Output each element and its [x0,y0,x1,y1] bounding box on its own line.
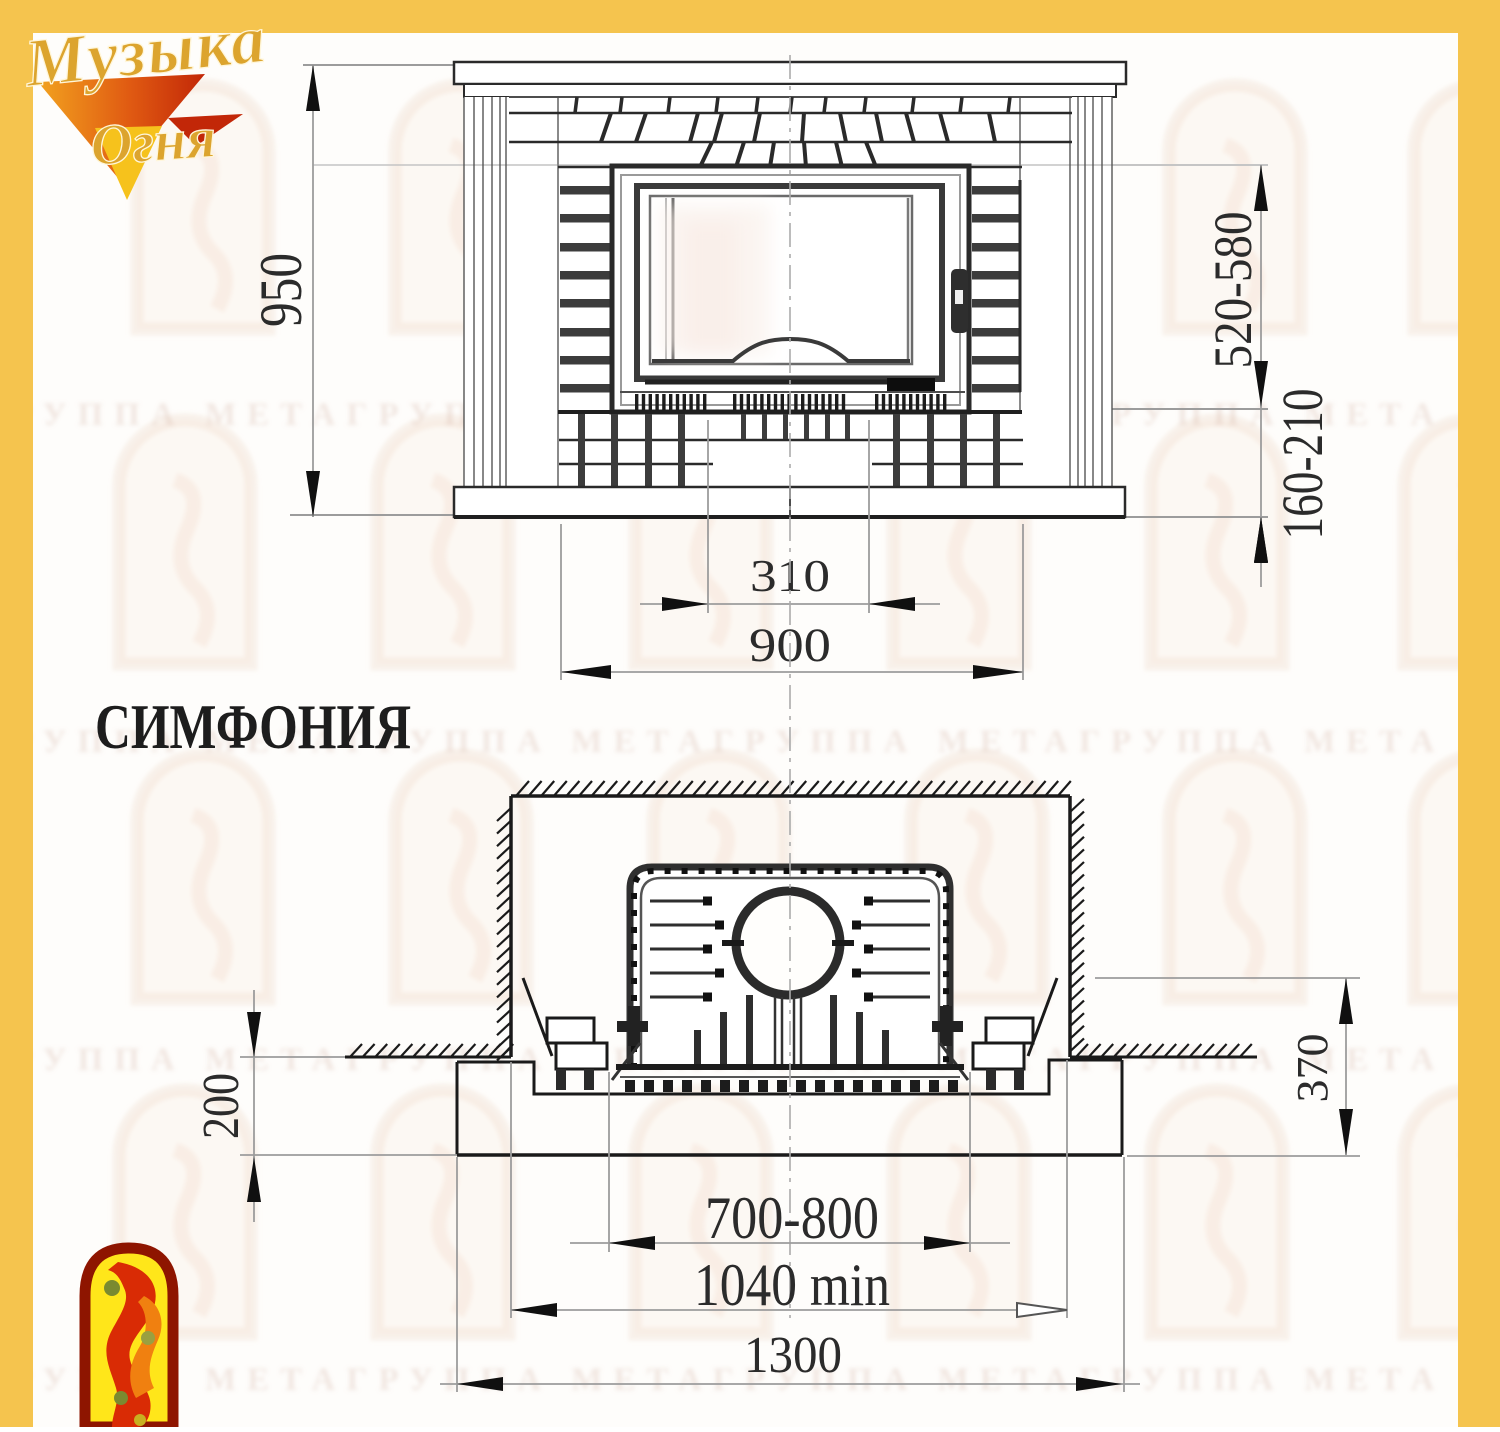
svg-text:520-580: 520-580 [1203,212,1263,369]
svg-text:700-800: 700-800 [705,1185,879,1251]
svg-text:1040 min: 1040 min [694,1252,890,1318]
svg-text:200: 200 [193,1073,250,1139]
svg-text:160-210: 160-210 [1270,389,1335,540]
svg-text:Огня: Огня [88,104,218,178]
svg-text:370: 370 [1288,1034,1337,1103]
svg-text:950: 950 [248,253,314,327]
svg-text:СИМФОНИЯ: СИМФОНИЯ [95,691,411,762]
svg-text:1300: 1300 [744,1327,842,1384]
svg-text:ГРУППА МЕТАГРУППА МЕТАГРУППА М: ГРУППА МЕТАГРУППА МЕТАГРУППА МЕТАГРУППА … [0,1362,1445,1398]
